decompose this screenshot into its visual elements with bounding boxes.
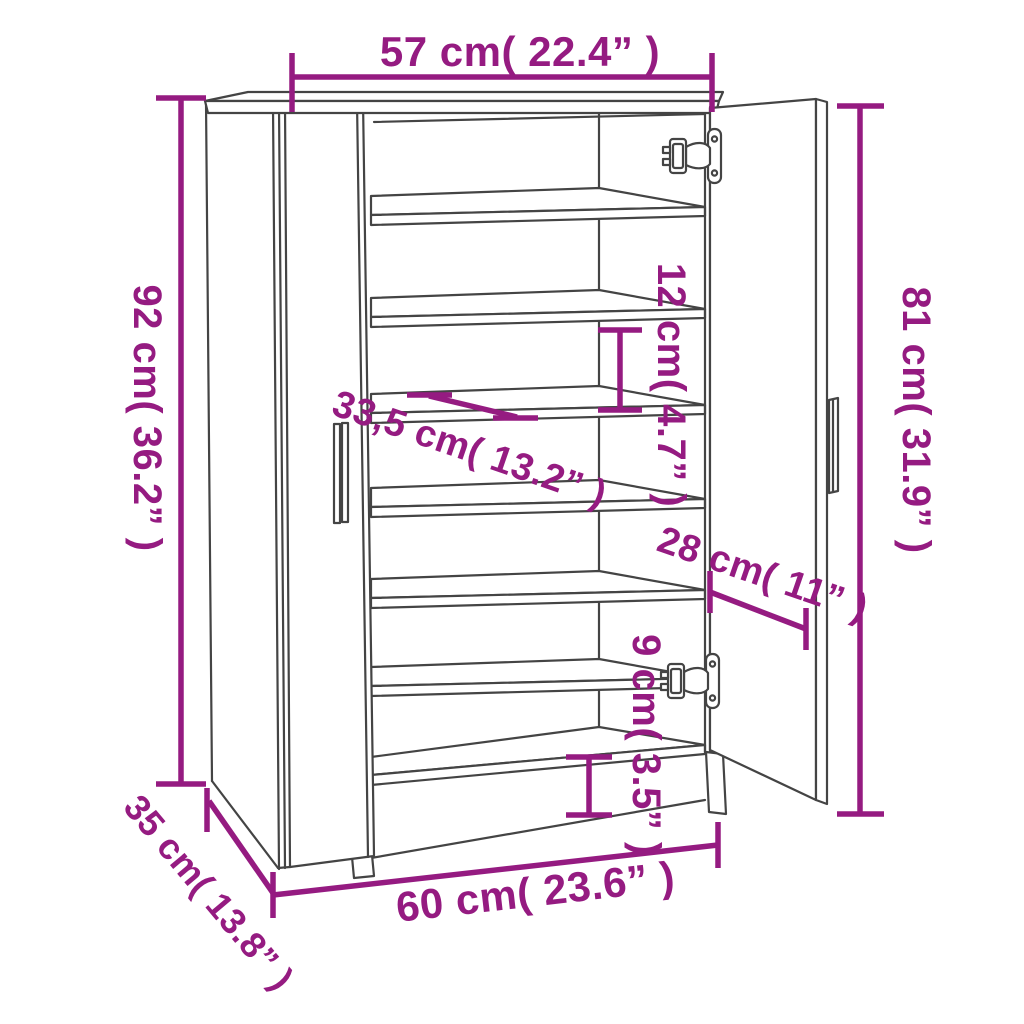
dimension-label: 57 cm( 22.4” ): [380, 28, 660, 75]
diagram-canvas: 57 cm( 22.4” ) 92 cm( 36.2” ) 81 cm( 31.…: [0, 0, 1024, 1024]
side-panel-front-edge: [273, 106, 279, 869]
top-panel: [205, 92, 723, 113]
left-door-handle: [334, 423, 348, 523]
hinge-screw: [710, 695, 715, 700]
bottom-hinge: [661, 654, 719, 708]
hinge-screw: [663, 147, 670, 153]
interior-ceiling-line: [374, 114, 705, 122]
right-door-thickness-edge: [816, 99, 827, 804]
front-right-leg: [706, 752, 726, 814]
shelf: [371, 188, 705, 225]
top-hinge: [663, 129, 721, 183]
right-door-face: [710, 99, 816, 800]
hinge-arm: [686, 143, 710, 168]
dimension-label: 9 cm( 3.5” ): [624, 634, 668, 856]
dimension-label: 12 cm( 4.7” ): [649, 263, 693, 507]
hinge-screw: [663, 159, 670, 165]
left-door: [285, 100, 374, 867]
dimension-right-height: 81 cm( 31.9” ): [837, 106, 938, 814]
right-door: [710, 99, 838, 804]
right-door-handle: [829, 398, 838, 493]
left-side-panel: [206, 102, 290, 869]
hinge-screw: [712, 170, 717, 175]
shoe-cabinet-dimension-diagram: 57 cm( 22.4” ) 92 cm( 36.2” ) 81 cm( 31.…: [0, 0, 1024, 1024]
handle-bar: [334, 424, 340, 523]
dimension-left-height: 92 cm( 36.2” ): [125, 98, 206, 784]
handle-bar: [342, 423, 348, 522]
side-panel-front-edge-inner: [279, 106, 285, 868]
hinge-screw: [712, 136, 717, 141]
hinge-cup-inner: [671, 669, 681, 693]
dimension-label: 92 cm( 36.2” ): [125, 284, 169, 551]
side-panel-outer-edge: [206, 102, 212, 781]
hinge-cup-inner: [673, 144, 683, 168]
dimension-label: 81 cm( 31.9” ): [894, 286, 938, 553]
hinge-screw: [710, 661, 715, 666]
shelf: [371, 571, 705, 608]
hinge-arm: [684, 668, 708, 693]
side-panel-bottom-corner: [278, 867, 290, 868]
top-panel-surface: [205, 92, 723, 101]
top-panel-front-edge: [205, 101, 719, 113]
left-door-face: [285, 100, 374, 867]
